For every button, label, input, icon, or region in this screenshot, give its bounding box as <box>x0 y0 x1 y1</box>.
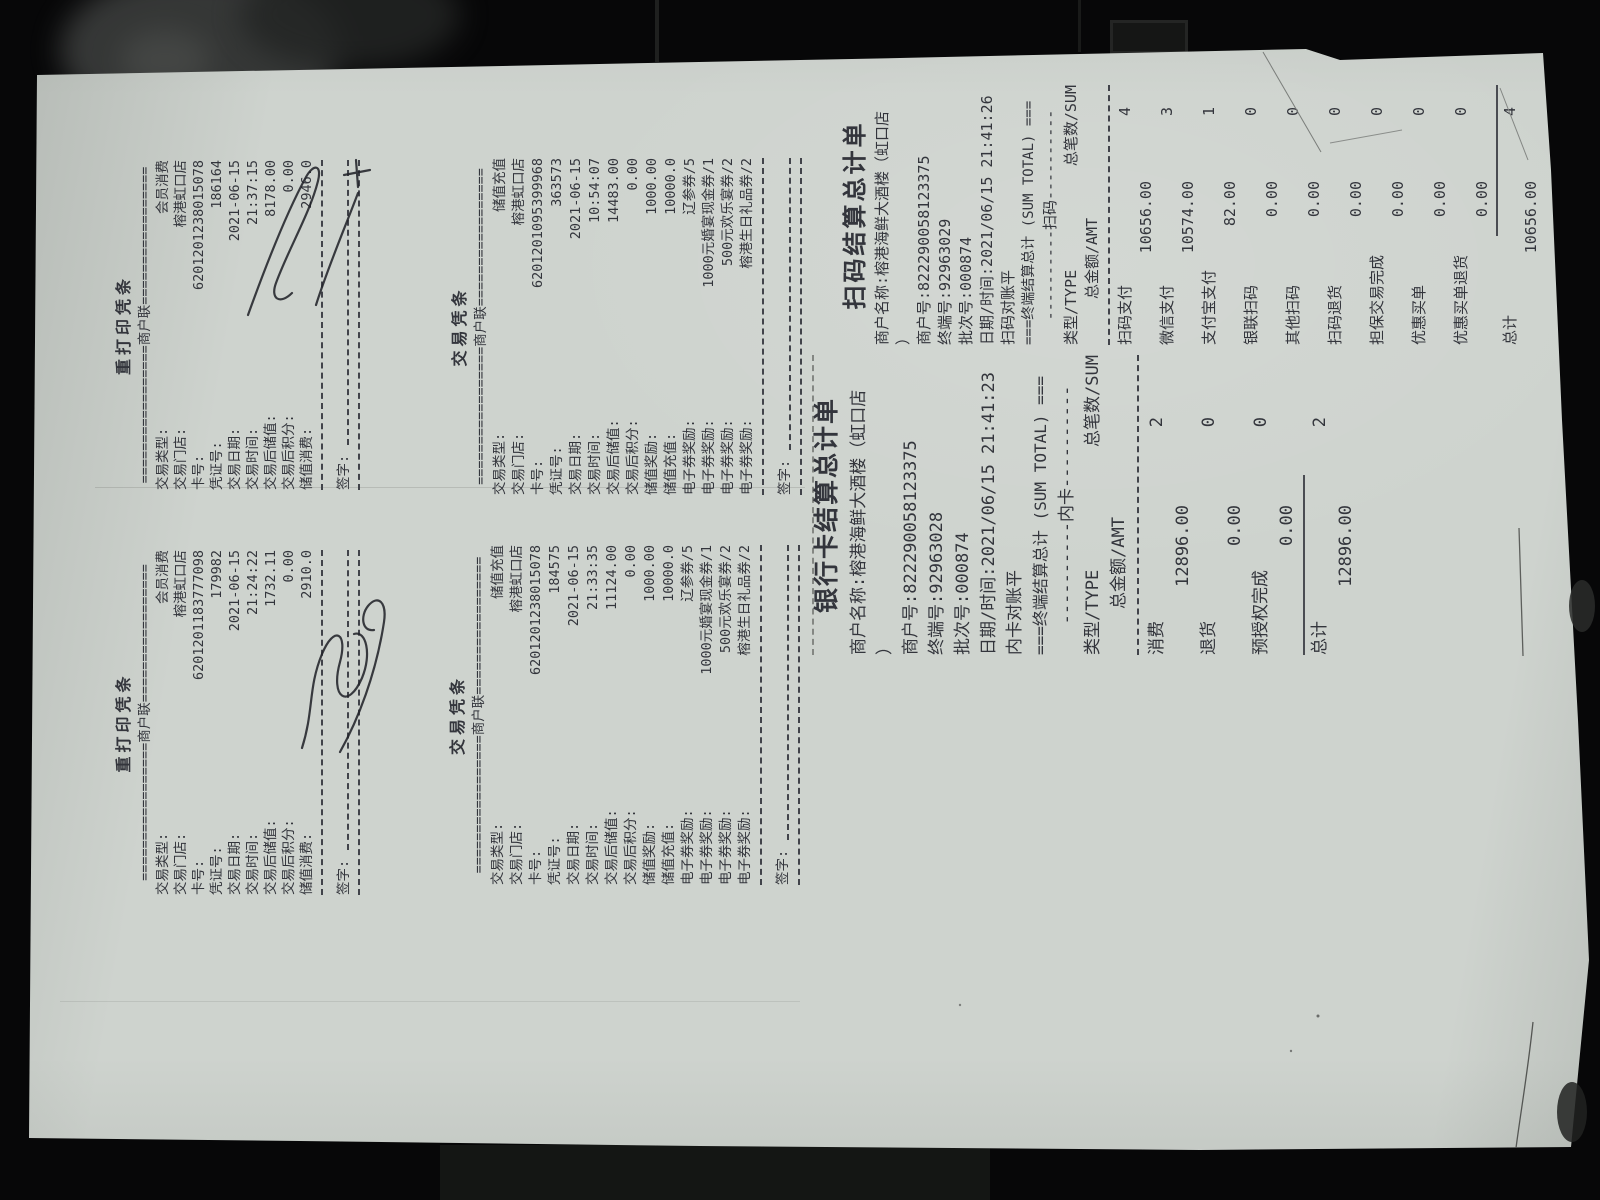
entry-amount: 0.00 <box>1472 85 1493 345</box>
field-value: 储值充值 <box>489 545 508 599</box>
entry-name: 扫码退货 <box>1325 285 1346 345</box>
summary-entry: 优惠买单 0 0.00 <box>1409 85 1451 345</box>
photo-of-scanned-receipts: { "colors": {"background": "#070708", "p… <box>0 0 1600 1200</box>
sum-total-heading: ===终端结算总计 (SUM TOTAL) === <box>1028 355 1054 655</box>
signature-row: 签字: <box>774 545 793 885</box>
field-row: 电子券奖励: 辽参券/5 <box>681 158 700 495</box>
signature-line <box>770 545 789 840</box>
entry-name: 扫码支付 <box>1115 285 1136 345</box>
field-row: 交易后储值: 1732.11 <box>262 550 280 895</box>
field-label: 凭证号: <box>208 846 226 895</box>
field-label: 储值奖励: <box>641 823 660 885</box>
field-value: 1000.00 <box>641 545 660 602</box>
divider <box>798 545 800 885</box>
entry-amount: 0.00 <box>1346 85 1367 345</box>
field-value: 6201201238015078 <box>527 545 546 675</box>
merchant-info: 商户名称:榕港海鲜大酒楼（虹口店）商户号:822290058123375终端号:… <box>872 85 1019 345</box>
field-value: 1000元婚宴现金券/1 <box>698 545 717 675</box>
signature-line <box>331 160 349 445</box>
field-label: 卡号: <box>190 455 208 490</box>
field-value: 21:37:15 <box>244 160 262 225</box>
receipt-title: 交易凭条 <box>450 158 469 495</box>
field-label: 交易日期: <box>226 428 244 490</box>
divider <box>358 160 360 490</box>
entry-amount: 82.00 <box>1220 85 1241 345</box>
field-value: 11124.00 <box>603 545 622 610</box>
field-row: 储值消费: 2910.0 <box>298 550 316 895</box>
field-rows: 交易类型: 会员消费 交易门店: 榕港虹口店 卡号: 6201201238015… <box>154 160 316 490</box>
summary-entry: 担保交易完成 0 0.00 <box>1367 85 1409 345</box>
field-label: 电子券奖励: <box>717 809 736 885</box>
summary-entry: 退货 0 0.00 <box>1196 355 1248 655</box>
info-line: 扫码对账平 <box>998 85 1019 345</box>
field-row: 交易门店: 榕港虹口店 <box>508 545 527 885</box>
field-value: 2021-06-15 <box>565 545 584 626</box>
type-column-header: 类型/TYPE <box>1080 570 1106 655</box>
entry-name: 支付宝支付 <box>1199 270 1220 345</box>
background-object <box>1110 20 1188 54</box>
field-label: 储值消费: <box>298 833 316 895</box>
entry-count: 0 <box>1283 107 1304 116</box>
count-column-header: 总笔数/SUM <box>1080 355 1106 447</box>
field-row: 交易日期: 2021-06-15 <box>226 550 244 895</box>
entry-name: 预授权完成 <box>1248 570 1274 655</box>
field-row: 交易后积分: 0.00 <box>280 550 298 895</box>
field-value: 186164 <box>208 160 226 209</box>
signature-line <box>331 550 349 850</box>
field-value: 2021-06-15 <box>226 550 244 631</box>
field-value: 榕港生日礼品券/2 <box>736 545 755 656</box>
field-label: 电子券奖励: <box>738 419 757 495</box>
info-line: 终端号:92963029 <box>935 85 956 345</box>
entry-amount: 0.00 <box>1222 355 1248 655</box>
field-value: 6201201238015078 <box>190 160 208 290</box>
slip-edge-line <box>60 1001 800 1002</box>
info-line: 商户名称:榕港海鲜大酒楼（虹口店 <box>846 355 872 655</box>
field-rows: 交易类型: 储值充值 交易门店: 榕港虹口店 卡号: 6201201238015… <box>489 545 755 885</box>
entry-name: 其他扫码 <box>1283 285 1304 345</box>
summary-entry: 银联扫码 0 0.00 <box>1241 85 1283 345</box>
receipt-bankcard-settlement-summary: 银行卡结算总计单 商户名称:榕港海鲜大酒楼（虹口店）商户号:8222900581… <box>812 355 1372 655</box>
field-value: 1000.00 <box>643 158 662 215</box>
info-line: 商户号:822290058123375 <box>914 85 935 345</box>
info-line: 商户号:822290058123375 <box>898 355 924 655</box>
field-value: 辽参券/5 <box>679 545 698 602</box>
count-column-header: 总笔数/SUM <box>1061 85 1082 166</box>
field-label: 卡号: <box>529 460 548 495</box>
field-label: 凭证号: <box>548 446 567 495</box>
entry-count: 0 <box>1451 107 1472 116</box>
total-count: 2 <box>1307 417 1333 427</box>
field-row: 电子券奖励: 榕港生日礼品券/2 <box>736 545 755 885</box>
entry-count: 3 <box>1157 107 1178 116</box>
field-label: 凭证号: <box>208 441 226 490</box>
divider <box>760 545 762 885</box>
field-row: 凭证号: 184575 <box>546 545 565 885</box>
field-row: 交易门店: 榕港虹口店 <box>172 160 190 490</box>
field-label: 卡号: <box>190 860 208 895</box>
field-value: 10000.0 <box>662 158 681 215</box>
divider <box>1137 355 1139 655</box>
entry-name: 银联扫码 <box>1241 285 1262 345</box>
receipt-title: 银行卡结算总计单 <box>814 355 840 655</box>
field-row: 交易后储值: 8178.00 <box>262 160 280 490</box>
summary-entry: 预授权完成 0 0.00 <box>1248 355 1300 655</box>
entry-count: 0 <box>1409 107 1430 116</box>
entry-name: 优惠买单退货 <box>1451 255 1472 345</box>
summary-entry: 优惠买单退货 0 0.00 <box>1451 85 1493 345</box>
field-value: 储值充值 <box>491 158 510 212</box>
total-divider <box>1496 85 1498 236</box>
summary-total: 总计 2 12896.00 <box>1307 355 1359 655</box>
field-row: 交易类型: 会员消费 <box>154 160 172 490</box>
info-line: 批次号:000874 <box>956 85 977 345</box>
entry-name: 退货 <box>1196 621 1222 655</box>
field-row: 交易类型: 储值充值 <box>489 545 508 885</box>
info-line: ） <box>893 85 914 345</box>
field-label: 电子券奖励: <box>700 419 719 495</box>
entry-name: 优惠买单 <box>1409 285 1430 345</box>
field-value: 榕港虹口店 <box>172 160 190 228</box>
field-label: 交易类型: <box>491 433 510 495</box>
copy-line: =================商户联================= <box>472 158 491 495</box>
divider <box>358 550 360 895</box>
field-value: 会员消费 <box>154 160 172 214</box>
field-row: 储值奖励: 1000.00 <box>641 545 660 885</box>
field-label: 储值消费: <box>298 428 316 490</box>
field-value: 榕港生日礼品券/2 <box>738 158 757 269</box>
receipt-scan-settlement-summary: 扫码结算总计单 商户名称:榕港海鲜大酒楼（虹口店）商户号:82229005812… <box>845 85 1550 345</box>
field-label: 交易门店: <box>508 823 527 885</box>
field-row: 储值奖励: 1000.00 <box>643 158 662 495</box>
total-label: 总计 <box>1500 315 1521 345</box>
receipt-reprint-2: 重打印凭条 =================商户联==============… <box>115 550 372 895</box>
summary-entry: 微信支付 3 10574.00 <box>1157 85 1199 345</box>
info-line: 日期/时间:2021/06/15 21:41:26 <box>977 85 998 345</box>
field-row: 交易时间: 10:54:07 <box>586 158 605 495</box>
field-label: 交易时间: <box>244 833 262 895</box>
entry-amount: 0.00 <box>1388 85 1409 345</box>
field-label: 交易日期: <box>565 823 584 885</box>
field-value: 辽参券/5 <box>681 158 700 215</box>
field-row: 交易类型: 储值充值 <box>491 158 510 495</box>
summary-entries: 扫码支付 4 10656.00 微信支付 3 10574.00 支付宝支付 <box>1115 85 1493 345</box>
total-amount: 10656.00 <box>1521 85 1542 345</box>
field-value: 榕港虹口店 <box>172 550 190 618</box>
info-line: 终端号:92963028 <box>924 355 950 655</box>
field-row: 电子券奖励: 1000元婚宴现金券/1 <box>700 158 719 495</box>
signature-row: 签字: <box>335 160 353 490</box>
field-value: 14483.00 <box>605 158 624 223</box>
amount-column-header: 总金额/AMT <box>1082 85 1103 345</box>
field-label: 储值充值: <box>662 433 681 495</box>
divider <box>762 158 764 495</box>
field-label: 交易日期: <box>567 433 586 495</box>
divider <box>800 158 802 495</box>
sign-label: 签字: <box>335 455 353 490</box>
entry-amount: 10656.00 <box>1136 85 1157 345</box>
field-value: 2021-06-15 <box>567 158 586 239</box>
field-label: 交易后储值: <box>605 419 624 495</box>
field-value: 0.00 <box>624 158 643 191</box>
field-row: 卡号: 6201201238015078 <box>190 160 208 490</box>
field-row: 卡号: 6201201095399968 <box>529 158 548 495</box>
receipt-title: 交易凭条 <box>448 545 467 885</box>
sign-label: 签字: <box>774 850 793 885</box>
field-rows: 交易类型: 储值充值 交易门店: 榕港虹口店 卡号: 6201201095399… <box>491 158 757 495</box>
field-row: 交易时间: 21:33:35 <box>584 545 603 885</box>
field-label: 凭证号: <box>546 836 565 885</box>
sum-total-heading: ===终端结算总计 (SUM TOTAL) === <box>1019 85 1040 345</box>
field-value: 1000元婚宴现金券/1 <box>700 158 719 288</box>
receipt-title: 扫码结算总计单 <box>845 85 866 345</box>
entry-count: 1 <box>1199 107 1220 116</box>
summary-entry: 消费 2 12896.00 <box>1144 355 1196 655</box>
field-label: 交易日期: <box>226 833 244 895</box>
total-divider <box>1303 475 1305 655</box>
info-line: 商户名称:榕港海鲜大酒楼（虹口店 <box>872 85 893 345</box>
summary-total: 总计 4 10656.00 <box>1500 85 1542 345</box>
field-label: 交易时间: <box>244 428 262 490</box>
field-label: 交易类型: <box>154 833 172 895</box>
field-row: 卡号: 6201201238015078 <box>527 545 546 885</box>
field-value: 6201201095399968 <box>529 158 548 288</box>
entry-count: 0 <box>1196 417 1222 427</box>
field-row: 储值充值: 10000.0 <box>662 158 681 495</box>
field-row: 凭证号: 363573 <box>548 158 567 495</box>
field-row: 储值充值: 10000.0 <box>660 545 679 885</box>
divider <box>321 160 323 490</box>
section-heading: ----------内卡---------- <box>1054 355 1080 655</box>
receipt-reprint-1: 重打印凭条 =================商户联==============… <box>115 160 368 490</box>
info-line: ） <box>872 355 898 655</box>
summary-entry: 支付宝支付 1 82.00 <box>1199 85 1241 345</box>
signature-row: 签字: <box>776 158 795 495</box>
entry-amount: 0.00 <box>1304 85 1325 345</box>
entry-count: 0 <box>1325 107 1346 116</box>
field-row: 交易后储值: 14483.00 <box>605 158 624 495</box>
background-seam <box>1078 0 1081 52</box>
column-headers: 类型/TYPE 总笔数/SUM <box>1061 85 1082 345</box>
field-label: 储值充值: <box>660 823 679 885</box>
field-value: 榕港虹口店 <box>510 158 529 226</box>
info-line: 内卡对账平 <box>1002 355 1028 655</box>
entry-amount: 0.00 <box>1430 85 1451 345</box>
field-label: 交易门店: <box>510 433 529 495</box>
field-value: 21:33:35 <box>584 545 603 610</box>
field-row: 交易日期: 2021-06-15 <box>226 160 244 490</box>
divider <box>321 550 323 895</box>
total-count: 4 <box>1500 107 1521 116</box>
field-label: 卡号: <box>527 850 546 885</box>
total-amount: 12896.00 <box>1333 355 1359 655</box>
entry-name: 担保交易完成 <box>1367 255 1388 345</box>
field-label: 交易后积分: <box>280 819 298 895</box>
entry-count: 0 <box>1248 417 1274 427</box>
total-label: 总计 <box>1307 621 1333 655</box>
field-row: 交易门店: 榕港虹口店 <box>172 550 190 895</box>
field-value: 榕港虹口店 <box>508 545 527 613</box>
field-label: 电子券奖励: <box>679 809 698 885</box>
field-value: 6201201183777098 <box>190 550 208 680</box>
receipt-title: 重打印凭条 <box>115 550 133 895</box>
field-value: 8178.00 <box>262 160 280 217</box>
summary-entries: 消费 2 12896.00 退货 0 0.00 预授权完成 <box>1144 355 1300 655</box>
field-row: 交易日期: 2021-06-15 <box>567 158 586 495</box>
section-heading: ----------扫码---------- <box>1040 85 1061 345</box>
receipt-transaction-2: 交易凭条 =================商户联===============… <box>448 545 808 885</box>
signature-line <box>772 158 791 450</box>
field-label: 交易后储值: <box>603 809 622 885</box>
field-rows: 交易类型: 会员消费 交易门店: 榕港虹口店 卡号: 6201201183777… <box>154 550 316 895</box>
field-value: 0.00 <box>622 545 641 578</box>
field-label: 电子券奖励: <box>681 419 700 495</box>
summary-entry: 扫码退货 0 0.00 <box>1325 85 1367 345</box>
info-line: 日期/时间:2021/06/15 21:41:23 <box>976 355 1002 655</box>
field-label: 交易时间: <box>584 823 603 885</box>
field-label: 交易类型: <box>154 428 172 490</box>
copy-line: =================商户联================= <box>136 550 154 895</box>
field-row: 交易后积分: 0.00 <box>622 545 641 885</box>
field-label: 电子券奖励: <box>698 809 717 885</box>
entry-amount: 0.00 <box>1262 85 1283 345</box>
field-value: 500元欢乐宴券/2 <box>719 158 738 266</box>
field-row: 交易时间: 21:37:15 <box>244 160 262 490</box>
field-value: 0.00 <box>280 160 298 193</box>
entry-count: 0 <box>1367 107 1388 116</box>
entry-amount: 12896.00 <box>1170 355 1196 655</box>
merchant-info: 商户名称:榕港海鲜大酒楼（虹口店）商户号:822290058123375终端号:… <box>846 355 1028 655</box>
divider <box>1108 85 1110 345</box>
signature-row: 签字: <box>335 550 353 895</box>
field-label: 交易时间: <box>586 433 605 495</box>
field-value: 会员消费 <box>154 550 172 604</box>
field-value: 363573 <box>548 158 567 207</box>
field-label: 交易后积分: <box>624 419 643 495</box>
field-row: 卡号: 6201201183777098 <box>190 550 208 895</box>
field-label: 交易类型: <box>489 823 508 885</box>
field-row: 储值消费: 2946.0 <box>298 160 316 490</box>
field-row: 凭证号: 179982 <box>208 550 226 895</box>
copy-line: =================商户联================= <box>470 545 489 885</box>
field-value: 2910.0 <box>298 550 316 599</box>
field-label: 储值奖励: <box>643 433 662 495</box>
field-value: 184575 <box>546 545 565 594</box>
field-value: 0.00 <box>280 550 298 583</box>
field-value: 500元欢乐宴券/2 <box>717 545 736 653</box>
amount-column-header: 总金额/AMT <box>1106 355 1132 655</box>
entry-count: 4 <box>1115 107 1136 116</box>
field-value: 179982 <box>208 550 226 599</box>
field-label: 交易后积分: <box>622 809 641 885</box>
field-row: 电子券奖励: 500元欢乐宴券/2 <box>717 545 736 885</box>
field-row: 电子券奖励: 辽参券/5 <box>679 545 698 885</box>
field-label: 交易门店: <box>172 428 190 490</box>
field-label: 交易后储值: <box>262 414 280 490</box>
entry-amount: 0.00 <box>1274 355 1300 655</box>
sign-label: 签字: <box>776 460 795 495</box>
entry-count: 0 <box>1241 107 1262 116</box>
field-value: 2021-06-15 <box>226 160 244 241</box>
column-headers: 类型/TYPE 总笔数/SUM <box>1080 355 1106 655</box>
type-column-header: 类型/TYPE <box>1061 270 1082 345</box>
entry-name: 微信支付 <box>1157 285 1178 345</box>
summary-entry: 其他扫码 0 0.00 <box>1283 85 1325 345</box>
field-value: 2946.0 <box>298 160 316 209</box>
copy-line: =================商户联================= <box>136 160 154 490</box>
field-row: 交易时间: 21:24:22 <box>244 550 262 895</box>
background-seam <box>655 0 659 62</box>
field-row: 交易后储值: 11124.00 <box>603 545 622 885</box>
field-label: 交易后积分: <box>280 414 298 490</box>
field-row: 电子券奖励: 榕港生日礼品券/2 <box>738 158 757 495</box>
field-value: 10:54:07 <box>586 158 605 223</box>
field-value: 21:24:22 <box>244 550 262 615</box>
field-label: 电子券奖励: <box>719 419 738 495</box>
field-row: 电子券奖励: 1000元婚宴现金券/1 <box>698 545 717 885</box>
field-value: 10000.0 <box>660 545 679 602</box>
entry-count: 2 <box>1144 417 1170 427</box>
field-row: 交易类型: 会员消费 <box>154 550 172 895</box>
field-row: 交易门店: 榕港虹口店 <box>510 158 529 495</box>
field-row: 凭证号: 186164 <box>208 160 226 490</box>
entry-name: 消费 <box>1144 621 1170 655</box>
field-label: 交易门店: <box>172 833 190 895</box>
field-row: 交易后积分: 0.00 <box>624 158 643 495</box>
background-floor-patch <box>440 1145 990 1200</box>
receipt-title: 重打印凭条 <box>115 160 133 490</box>
field-row: 电子券奖励: 500元欢乐宴券/2 <box>719 158 738 495</box>
receipt-transaction-1: 交易凭条 =================商户联===============… <box>450 158 805 495</box>
field-row: 交易日期: 2021-06-15 <box>565 545 584 885</box>
sign-label: 签字: <box>335 860 353 895</box>
field-label: 电子券奖励: <box>736 809 755 885</box>
summary-entry: 扫码支付 4 10656.00 <box>1115 85 1157 345</box>
info-line: 批次号:000874 <box>950 355 976 655</box>
field-row: 交易后积分: 0.00 <box>280 160 298 490</box>
field-label: 交易后储值: <box>262 819 280 895</box>
field-value: 1732.11 <box>262 550 280 607</box>
entry-amount: 10574.00 <box>1178 85 1199 345</box>
